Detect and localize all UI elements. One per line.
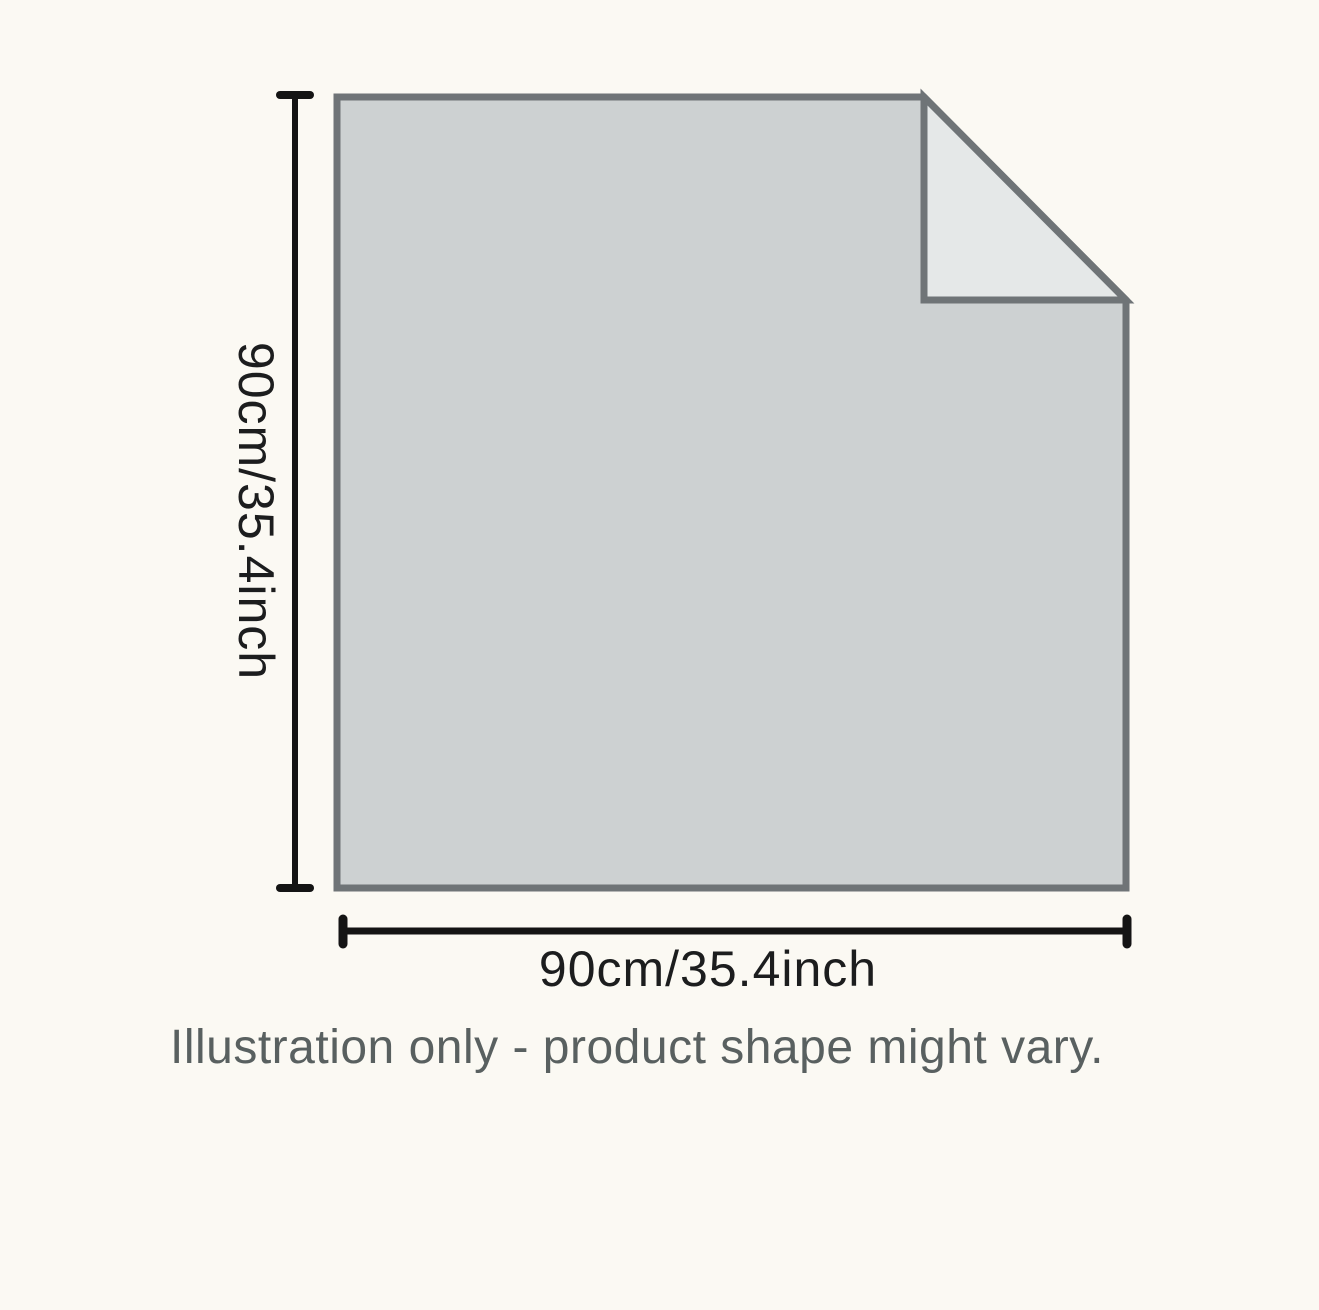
dimension-diagram [0,0,1319,1310]
width-dimension-label: 90cm/35.4inch [539,944,877,994]
height-dimension-line [280,95,310,888]
height-dimension-label: 90cm/35.4inch [231,342,281,680]
illustration-note: Illustration only - product shape might … [170,1024,1104,1072]
product-dimension-illustration: 90cm/35.4inch 90cm/35.4inch Illustration… [0,0,1319,1310]
folded-corner [924,97,1126,300]
